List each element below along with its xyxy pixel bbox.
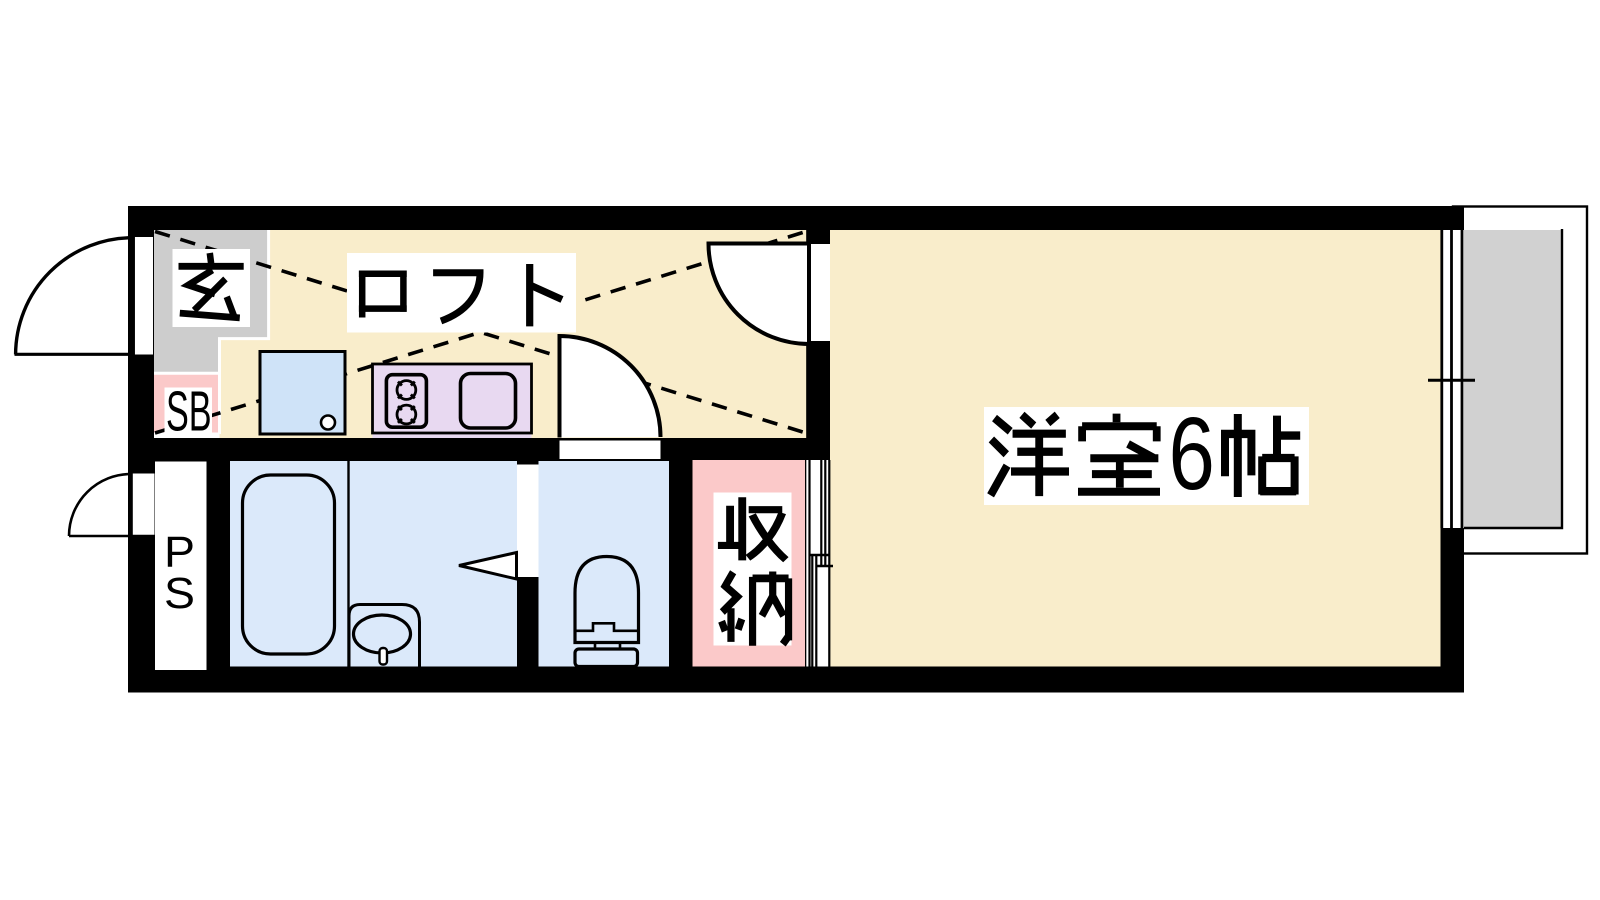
svg-text:SB: SB: [166, 378, 212, 442]
svg-text:6: 6: [1169, 396, 1215, 511]
svg-text:S: S: [164, 569, 195, 618]
